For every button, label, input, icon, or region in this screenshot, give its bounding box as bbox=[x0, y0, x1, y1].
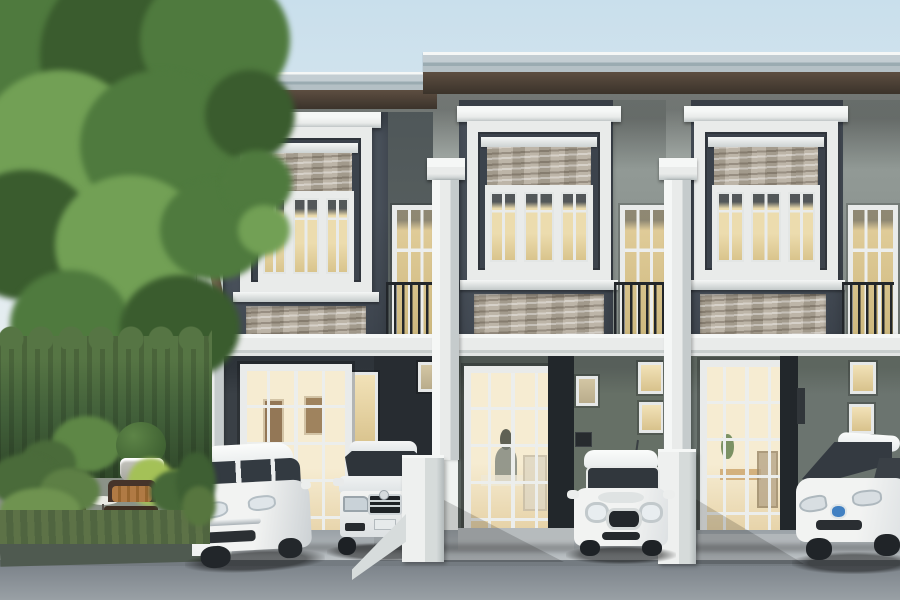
interstorey-band bbox=[196, 334, 900, 356]
pilaster2-shaft bbox=[432, 180, 459, 460]
tree-overhang-foliage bbox=[238, 205, 290, 255]
car-mirror-right bbox=[663, 490, 675, 499]
car-white-hybrid bbox=[796, 434, 900, 584]
car-wheel-left bbox=[338, 537, 356, 555]
pilaster3-capital bbox=[659, 158, 697, 180]
unit3-lit-window-lower bbox=[849, 404, 874, 434]
pane bbox=[326, 198, 349, 274]
car-grille bbox=[606, 508, 642, 530]
car-mirror-left bbox=[567, 490, 579, 499]
car-wheel-left bbox=[580, 540, 600, 556]
driveway-wall-1 bbox=[402, 458, 444, 562]
car-headlight-left bbox=[343, 496, 369, 512]
window-panes bbox=[712, 185, 820, 270]
shrub-foreground bbox=[182, 486, 216, 526]
stone-infill bbox=[487, 147, 591, 185]
unit1-side-lit-window bbox=[352, 372, 378, 450]
window-frame bbox=[694, 121, 838, 281]
stone-infill bbox=[714, 147, 818, 185]
pane bbox=[751, 192, 781, 262]
unit2-door-reveal bbox=[548, 356, 574, 548]
window-pediment bbox=[684, 106, 848, 122]
car-grille-bar bbox=[370, 500, 400, 502]
unit2-main-window bbox=[467, 106, 611, 290]
street bbox=[0, 566, 900, 600]
inner-cornice bbox=[481, 137, 597, 147]
window-pediment bbox=[457, 106, 621, 122]
window-sill bbox=[460, 280, 618, 290]
chair-cushion bbox=[112, 486, 152, 502]
unit3-dark-slot bbox=[797, 388, 805, 424]
townhouse-rendering-scene bbox=[0, 0, 900, 600]
car-wheel-front bbox=[806, 538, 832, 560]
unit2-lit-window-upper bbox=[638, 362, 664, 394]
unit3-lit-window-upper bbox=[850, 362, 876, 394]
door-mullions bbox=[471, 373, 555, 537]
window-frame bbox=[467, 121, 611, 281]
tree-canopy bbox=[205, 70, 295, 160]
car-hood-scuttle bbox=[598, 492, 644, 503]
pane bbox=[524, 192, 554, 262]
pilaster3-shaft bbox=[664, 180, 691, 460]
car-white-mini bbox=[572, 450, 670, 564]
car-badge-blue bbox=[830, 504, 847, 519]
unit3-main-window bbox=[694, 106, 838, 290]
grass-strip bbox=[0, 510, 210, 544]
unit2-stone-band bbox=[474, 294, 604, 334]
car-wheel-rear bbox=[874, 534, 900, 556]
pane bbox=[490, 192, 517, 262]
window-sill bbox=[233, 292, 378, 302]
inner-cornice bbox=[708, 137, 824, 147]
car-mirror-left bbox=[333, 478, 344, 486]
window-sill bbox=[687, 280, 845, 290]
window-panes bbox=[485, 185, 593, 270]
pane bbox=[788, 192, 815, 262]
unit2-wall-vent bbox=[575, 432, 592, 447]
car-lower-grille bbox=[816, 520, 862, 530]
car-mirror bbox=[301, 481, 311, 490]
main-roof-fascia bbox=[423, 52, 900, 72]
pane bbox=[717, 192, 744, 262]
car-headlight-right bbox=[639, 502, 663, 523]
unit2-lit-window-lower bbox=[639, 402, 664, 433]
car-wheel-right bbox=[642, 540, 662, 556]
car-grille-bar2 bbox=[370, 505, 400, 507]
car-bumper-intake bbox=[602, 532, 640, 540]
unit3-stone-band bbox=[700, 294, 826, 334]
pilaster2-capital bbox=[427, 158, 465, 180]
unit1-stone-band bbox=[246, 306, 366, 334]
main-roof-soffit bbox=[423, 72, 900, 94]
unit2-small-window bbox=[576, 376, 598, 406]
pane bbox=[561, 192, 588, 262]
car-bumper-intake-left bbox=[345, 523, 365, 531]
car-badge bbox=[379, 490, 389, 500]
pane bbox=[293, 198, 319, 274]
